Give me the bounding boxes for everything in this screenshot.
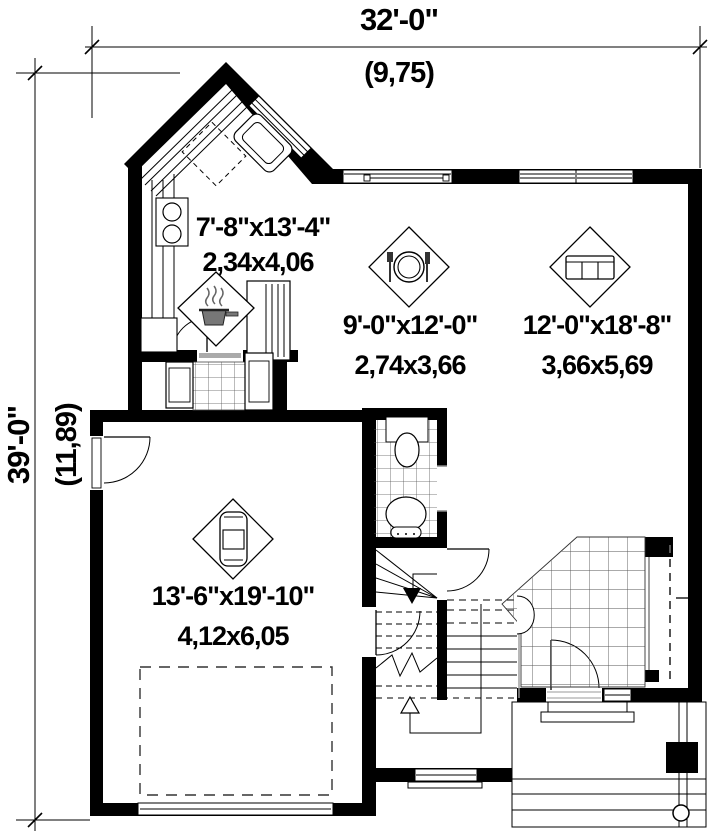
garage-overhead-door — [138, 803, 333, 815]
bathroom — [374, 417, 437, 538]
stair-divider-wall — [437, 600, 447, 700]
dining-size-metric: 2,74x3,66 — [354, 350, 466, 380]
counter-end-cabinet — [141, 318, 177, 352]
living-size-imperial: 12'-0"x18'-8" — [523, 310, 672, 340]
garage-top-wall — [90, 410, 376, 422]
stove-pot-icon — [178, 272, 254, 346]
porch-post — [666, 742, 698, 773]
bathroom-right-wall-upper — [437, 420, 447, 466]
living-window-right — [576, 170, 633, 183]
cooktop — [156, 198, 188, 246]
front-sidelight-window — [604, 689, 631, 701]
garage-side-door — [90, 436, 150, 490]
basement-stair-door — [447, 549, 489, 591]
hall-rear-window — [408, 769, 482, 788]
living-label: 12'-0"x18'-8" 3,66x5,69 — [523, 227, 672, 380]
living-size-metric: 3,66x5,69 — [541, 350, 653, 380]
garage-label: 13'-6"x19'-10" 4,12x6,05 — [152, 499, 315, 651]
dining-window — [343, 170, 452, 183]
kitchen-door-threshold — [199, 353, 241, 358]
entry-closet — [649, 545, 690, 680]
kitchen-sink — [231, 111, 295, 175]
washer — [166, 362, 193, 408]
bathroom-bottom-wall — [362, 537, 447, 548]
dining-label: 9'-0"x12'-0" 2,74x3,66 — [343, 227, 478, 380]
kitchen-left-wall — [128, 160, 142, 422]
floor-plan-page: 32'-0" (9,75) 39'-0" (11,89) — [0, 0, 720, 834]
garage-entry-door — [362, 607, 420, 657]
closet-top-wall — [645, 537, 673, 557]
garage-size-metric: 4,12x6,05 — [177, 621, 289, 651]
garage-door-dashed-outline — [140, 667, 332, 795]
entry-step-1 — [548, 702, 627, 712]
kitchen-peninsula — [247, 281, 290, 360]
right-wall — [688, 169, 702, 702]
toilet — [386, 497, 426, 538]
living-window-left — [519, 170, 576, 183]
height-dimension-imperial: 39'-0" — [1, 406, 36, 484]
dryer — [245, 353, 273, 410]
dining-size-imperial: 9'-0"x12'-0" — [343, 310, 478, 340]
place-setting-icon — [369, 227, 449, 307]
width-dimension-imperial: 32'-0" — [360, 2, 438, 37]
porch-column-base — [673, 805, 689, 821]
kitchen-size-imperial: 7'-8"x13'-4" — [196, 212, 331, 242]
staircase — [376, 550, 532, 733]
stair-down-arrow — [403, 574, 437, 604]
laundry-right-wall — [272, 350, 287, 422]
sofa-icon — [550, 227, 630, 307]
foyer — [502, 537, 690, 687]
bathroom-door-opening — [437, 466, 447, 511]
height-dimension-metric: (11,89) — [51, 403, 83, 487]
closet-bottom-wall — [645, 670, 659, 682]
front-porch — [512, 702, 706, 827]
kitchen-diagonal-wall-left — [124, 62, 226, 174]
laundry-tile-floor — [193, 362, 245, 410]
garage — [140, 667, 332, 795]
stair-break-line — [376, 653, 437, 676]
entry-step-2 — [541, 712, 634, 722]
car-icon — [193, 499, 273, 579]
basement-stair-flight — [376, 550, 437, 686]
width-dimension-metric: (9,75) — [364, 57, 434, 89]
garage-size-imperial: 13'-6"x19'-10" — [152, 581, 315, 611]
kitchen-size-metric: 2,34x4,06 — [202, 247, 314, 277]
floor-plan-drawing: 32'-0" (9,75) 39'-0" (11,89) — [0, 0, 720, 834]
